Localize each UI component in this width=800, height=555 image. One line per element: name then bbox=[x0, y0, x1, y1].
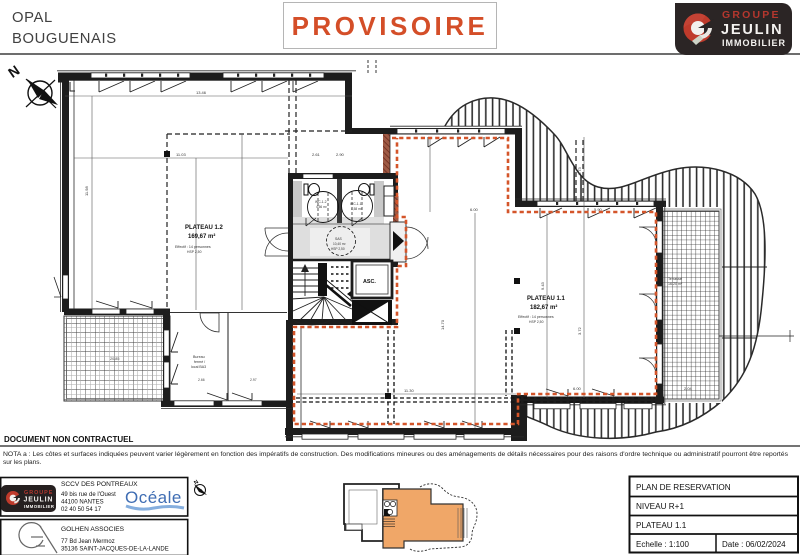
svg-text:13.46: 13.46 bbox=[196, 90, 207, 95]
svg-text:169,67 m²: 169,67 m² bbox=[188, 233, 215, 240]
svg-text:WC-1.2: WC-1.2 bbox=[315, 200, 327, 204]
svg-text:HSP 2,50: HSP 2,50 bbox=[187, 250, 202, 254]
svg-text:SCCV DES PONTREAUX: SCCV DES PONTREAUX bbox=[61, 481, 138, 488]
svg-text:16.20 m²: 16.20 m² bbox=[668, 282, 683, 286]
svg-text:11.30: 11.30 bbox=[404, 388, 414, 393]
svg-text:Bureau: Bureau bbox=[193, 355, 205, 359]
svg-text:IMMOBILIER: IMMOBILIER bbox=[24, 504, 55, 509]
svg-text:9.43: 9.43 bbox=[540, 281, 545, 290]
svg-text:6.00: 6.00 bbox=[470, 207, 479, 212]
svg-text:2.04: 2.04 bbox=[684, 386, 693, 391]
svg-text:NOTA a : Les côtes et surfaces: NOTA a : Les côtes et surfaces indiquées… bbox=[3, 451, 789, 458]
svg-text:4,56 m²: 4,56 m² bbox=[316, 205, 327, 209]
svg-text:PLAN DE RESERVATION: PLAN DE RESERVATION bbox=[636, 483, 731, 492]
svg-text:02 40 50 54 17: 02 40 50 54 17 bbox=[61, 507, 102, 513]
svg-text:Effectif : 14 personnes: Effectif : 14 personnes bbox=[518, 315, 554, 319]
svg-text:PLATEAU 1.2: PLATEAU 1.2 bbox=[185, 225, 224, 231]
svg-text:SAS: SAS bbox=[335, 237, 343, 241]
svg-text:BOUGUENAIS: BOUGUENAIS bbox=[12, 31, 117, 47]
svg-text:2.73: 2.73 bbox=[577, 166, 582, 175]
svg-text:2.61: 2.61 bbox=[312, 152, 321, 157]
svg-text:49 bis rue de l'Ouest: 49 bis rue de l'Ouest bbox=[61, 492, 116, 498]
svg-text:WC-1.1: WC-1.1 bbox=[350, 202, 362, 206]
svg-text:11.98: 11.98 bbox=[84, 186, 89, 196]
svg-text:6.00: 6.00 bbox=[573, 386, 582, 391]
svg-text:10,40 m²: 10,40 m² bbox=[333, 242, 346, 246]
svg-text:PLATEAU 1.1: PLATEAU 1.1 bbox=[527, 296, 566, 302]
svg-text:Date : 06/02/2024: Date : 06/02/2024 bbox=[722, 540, 786, 549]
svg-text:DOCUMENT NON CONTRACTUEL: DOCUMENT NON CONTRACTUEL bbox=[4, 435, 133, 444]
svg-text:NIVEAU R+1: NIVEAU R+1 bbox=[636, 502, 684, 511]
svg-text:2.90: 2.90 bbox=[336, 152, 345, 157]
svg-text:77 Bd Jean Mermoz: 77 Bd Jean Mermoz bbox=[61, 539, 115, 545]
svg-text:JEULIN: JEULIN bbox=[24, 497, 54, 504]
svg-text:4,58 m²: 4,58 m² bbox=[351, 207, 362, 211]
svg-text:sur les plans.: sur les plans. bbox=[3, 459, 41, 466]
svg-text:2.66: 2.66 bbox=[198, 378, 205, 382]
svg-text:ASC.: ASC. bbox=[363, 279, 376, 285]
svg-text:182,67 m²: 182,67 m² bbox=[530, 304, 557, 311]
svg-text:GOLHEN ASSOCIES: GOLHEN ASSOCIES bbox=[61, 526, 125, 533]
svg-text:JEULIN: JEULIN bbox=[721, 22, 783, 38]
svg-text:Effectif : 14 personnes: Effectif : 14 personnes bbox=[175, 245, 211, 249]
svg-text:PROVISOIRE: PROVISOIRE bbox=[292, 11, 489, 41]
svg-text:Echelle : 1:100: Echelle : 1:100 bbox=[636, 540, 689, 549]
svg-text:44100 NANTES: 44100 NANTES bbox=[61, 500, 104, 506]
svg-text:2.97: 2.97 bbox=[250, 378, 257, 382]
svg-text:35136 SAINT-JACQUES-DE-LA-LAND: 35136 SAINT-JACQUES-DE-LA-LANDE bbox=[61, 547, 169, 553]
svg-text:GROUPE: GROUPE bbox=[722, 9, 781, 21]
svg-text:11.03: 11.03 bbox=[176, 152, 186, 157]
svg-text:HSP 2,50: HSP 2,50 bbox=[331, 247, 345, 251]
svg-text:20.85: 20.85 bbox=[110, 357, 120, 361]
svg-text:3.72: 3.72 bbox=[577, 326, 582, 335]
svg-text:Océale: Océale bbox=[125, 488, 182, 507]
svg-text:Terrasse: Terrasse bbox=[668, 277, 682, 281]
svg-text:14.70: 14.70 bbox=[440, 319, 445, 330]
svg-text:local BA3: local BA3 bbox=[191, 365, 206, 369]
svg-text:HSP 2,50: HSP 2,50 bbox=[529, 320, 544, 324]
svg-text:OPAL: OPAL bbox=[12, 10, 53, 26]
svg-text:PLATEAU 1.1: PLATEAU 1.1 bbox=[636, 521, 687, 530]
svg-text:GROUPE: GROUPE bbox=[24, 490, 53, 496]
svg-text:fermé /: fermé / bbox=[194, 360, 205, 364]
svg-text:IMMOBILIER: IMMOBILIER bbox=[722, 38, 786, 48]
